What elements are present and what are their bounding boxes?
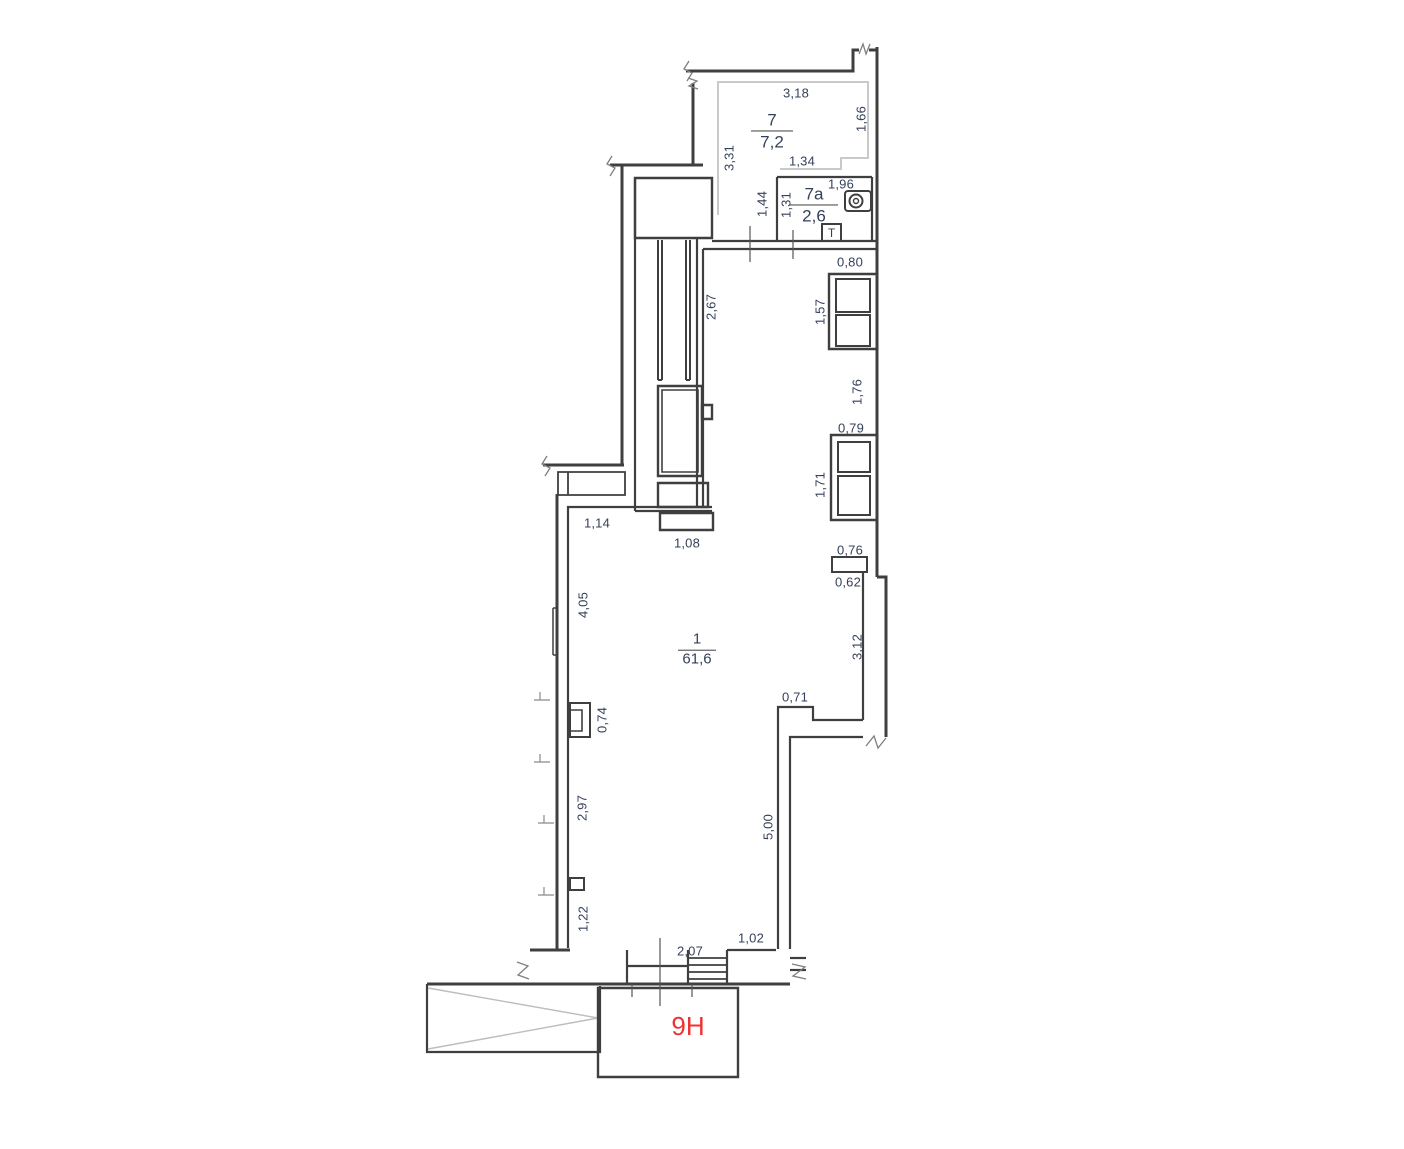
dimension-label: 1,14 [584, 517, 610, 530]
dimension-label: 0,74 [596, 707, 609, 733]
dimension-label: 5,00 [762, 814, 775, 840]
dimension-label: 1,08 [674, 537, 700, 550]
room-7a-number: 7a [790, 184, 838, 205]
dimension-label: 3,31 [723, 145, 736, 171]
dimension-label: 0,76 [837, 544, 863, 557]
room-7-area: 7,2 [751, 132, 793, 152]
floor-plan-canvas: 3,181,663,311,341,441,311,962,670,801,57… [0, 0, 1404, 1149]
room-7a-area: 2,6 [790, 206, 838, 226]
toilet-icon [845, 191, 871, 211]
unit-9h-label: 9H [671, 1013, 704, 1039]
stair-elevator-core [635, 178, 713, 530]
dimension-label: 1,57 [814, 299, 827, 325]
window-symbols [558, 472, 727, 979]
dimension-label: 1,22 [577, 906, 590, 932]
dimension-label: 1,66 [855, 106, 868, 132]
elevator-shaft [658, 386, 702, 476]
dimension-label: 0,80 [837, 256, 863, 269]
dimension-label: 4,05 [577, 592, 590, 618]
towel-rail-t-label: T [828, 227, 835, 239]
unit-9h-outline [598, 988, 738, 1077]
dimension-label: 2,67 [705, 294, 718, 320]
room-1-number: 1 [678, 632, 716, 651]
room-1-label: 1 61,6 [678, 632, 716, 669]
entrance-ramp-hatch [428, 988, 598, 1049]
stair-flight-lines [658, 240, 690, 380]
dimension-label: 0,62 [835, 576, 861, 589]
dimension-label: 2,97 [576, 795, 589, 821]
dimension-label: 3,12 [851, 634, 864, 660]
inner-walls [427, 177, 877, 1052]
dimension-label: 2,07 [677, 945, 703, 958]
wall-tie-marks [534, 692, 554, 895]
floor-plan-svg [0, 0, 1404, 1149]
room-7-label: 7 7,2 [751, 110, 793, 151]
dimension-label: 1,02 [738, 932, 764, 945]
dimension-label: 1,34 [789, 155, 815, 168]
room-7-number: 7 [751, 110, 793, 131]
dimension-label: 1,76 [851, 379, 864, 405]
dimension-label: 0,71 [782, 691, 808, 704]
dimension-label: 3,18 [783, 87, 809, 100]
room-1-area: 61,6 [678, 651, 716, 669]
dimension-label: 1,71 [814, 472, 827, 498]
dimension-label: 1,44 [756, 191, 769, 217]
room-7a-label: 7a 2,6 [790, 184, 838, 225]
dimension-ticks [632, 226, 793, 1006]
dimension-label: 0,79 [838, 422, 864, 435]
